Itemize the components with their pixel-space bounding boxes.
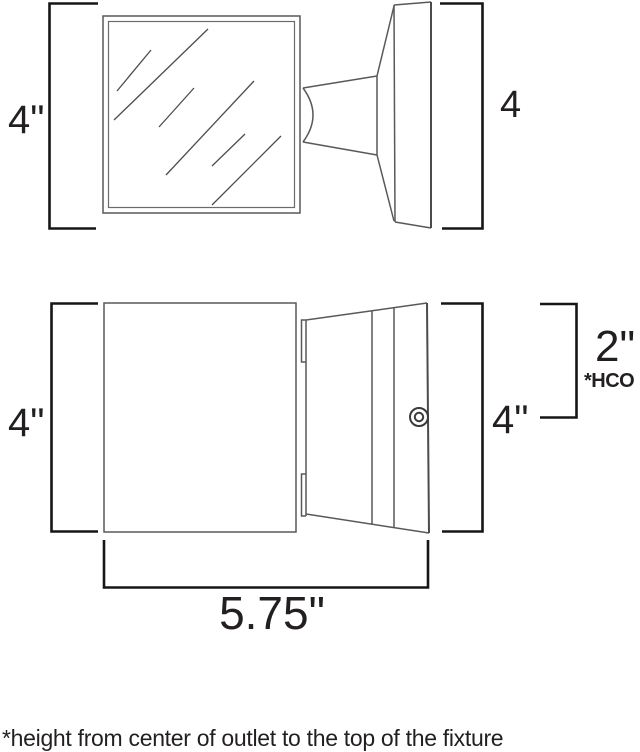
front-view: 4" 4" 2" *HCO 5.75" xyxy=(8,303,635,639)
screw-head-icon xyxy=(410,408,428,426)
hco-dim-label: 2" xyxy=(595,322,635,371)
top-right-dim-label: 4 xyxy=(500,84,521,126)
width-dim-label: 5.75" xyxy=(219,587,325,639)
top-view: 4" 4 xyxy=(8,2,521,229)
swivel-arm xyxy=(303,76,377,155)
front-left-dim-label: 4" xyxy=(8,401,44,445)
swivel-knuckle xyxy=(303,88,313,142)
front-right-dim-label: 4" xyxy=(492,398,528,442)
diagram-canvas: 4" 4 xyxy=(0,0,640,752)
front-left-dim-bracket xyxy=(52,304,99,532)
wall-canopy xyxy=(377,2,431,228)
width-dim-bracket xyxy=(104,540,428,588)
fixture-front-face xyxy=(104,303,296,532)
front-right-dim-bracket xyxy=(441,304,483,532)
glass-panel-inner xyxy=(109,22,295,208)
top-right-dim-bracket xyxy=(440,4,483,229)
top-left-dim-bracket xyxy=(50,4,99,229)
hco-note-label: *HCO xyxy=(584,370,634,392)
fixture-side-panel xyxy=(302,303,430,533)
glass-panel-outer xyxy=(103,16,300,213)
glass-hatch-lines xyxy=(114,29,281,205)
hco-dim-bracket xyxy=(540,304,577,418)
hco-footnote: *height from center of outlet to the top… xyxy=(2,725,503,751)
top-left-dim-label: 4" xyxy=(8,98,44,142)
fixture-dimension-diagram: 4" 4 xyxy=(0,0,640,752)
